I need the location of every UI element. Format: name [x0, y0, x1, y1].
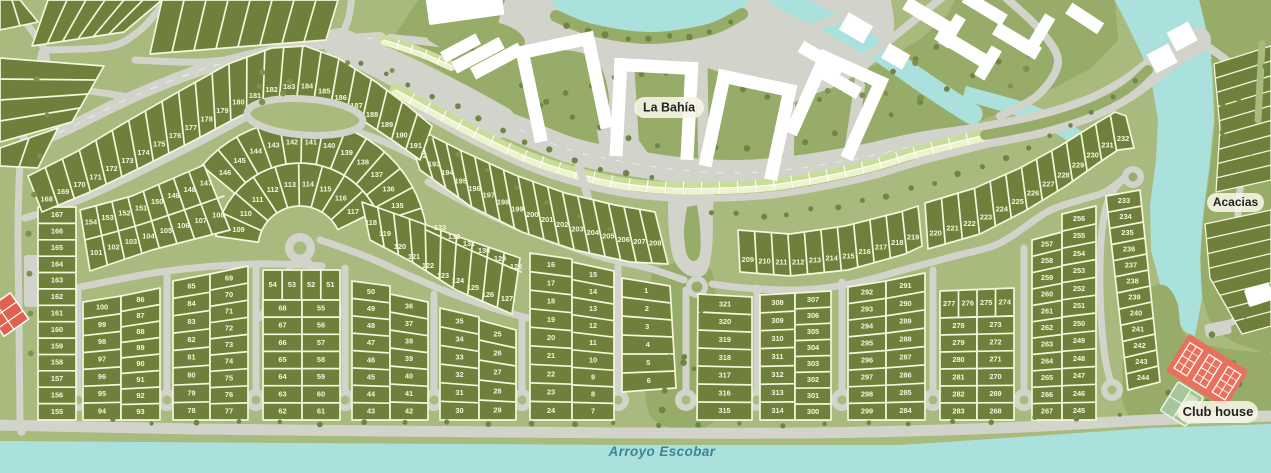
svg-text:149: 149	[167, 191, 179, 200]
svg-text:226: 226	[1027, 188, 1039, 197]
svg-text:275: 275	[980, 298, 992, 307]
svg-text:235: 235	[1121, 228, 1133, 237]
svg-text:237: 237	[1125, 260, 1137, 269]
svg-text:201: 201	[541, 215, 553, 224]
svg-text:74: 74	[225, 357, 234, 366]
svg-text:271: 271	[989, 355, 1001, 364]
svg-text:308: 308	[771, 298, 783, 307]
svg-text:133: 133	[434, 223, 446, 232]
svg-text:295: 295	[861, 338, 873, 347]
svg-text:33: 33	[455, 352, 463, 361]
svg-text:272: 272	[989, 337, 1001, 346]
svg-text:255: 255	[1073, 231, 1085, 240]
svg-text:320: 320	[719, 317, 731, 326]
svg-text:182: 182	[266, 85, 278, 94]
svg-text:176: 176	[169, 131, 181, 140]
svg-text:273: 273	[989, 320, 1001, 329]
svg-text:215: 215	[842, 251, 854, 260]
svg-text:194: 194	[441, 168, 454, 177]
svg-text:261: 261	[1041, 306, 1053, 315]
svg-text:114: 114	[302, 179, 315, 188]
svg-text:168: 168	[41, 194, 53, 203]
svg-text:279: 279	[952, 338, 964, 347]
svg-text:317: 317	[719, 370, 731, 379]
svg-text:112: 112	[267, 185, 279, 194]
svg-text:172: 172	[105, 164, 117, 173]
svg-text:150: 150	[151, 197, 163, 206]
svg-text:219: 219	[907, 232, 919, 241]
svg-text:188: 188	[366, 110, 378, 119]
svg-text:154: 154	[85, 218, 98, 227]
svg-text:34: 34	[455, 334, 464, 343]
svg-text:85: 85	[187, 281, 195, 290]
svg-text:249: 249	[1073, 336, 1085, 345]
svg-text:250: 250	[1073, 319, 1085, 328]
svg-text:305: 305	[807, 327, 819, 336]
svg-text:24: 24	[547, 406, 556, 415]
svg-text:252: 252	[1073, 284, 1085, 293]
svg-text:178: 178	[201, 114, 213, 123]
svg-text:69: 69	[225, 273, 233, 282]
svg-text:287: 287	[899, 352, 911, 361]
svg-text:214: 214	[826, 254, 839, 263]
svg-text:318: 318	[719, 353, 731, 362]
svg-text:83: 83	[187, 317, 195, 326]
svg-text:304: 304	[807, 343, 820, 352]
svg-text:139: 139	[341, 148, 353, 157]
svg-text:247: 247	[1073, 371, 1085, 380]
svg-text:297: 297	[861, 372, 873, 381]
svg-text:57: 57	[317, 338, 325, 347]
svg-text:224: 224	[996, 205, 1009, 214]
svg-text:169: 169	[57, 187, 69, 196]
svg-text:127: 127	[501, 294, 513, 303]
svg-text:197: 197	[483, 191, 495, 200]
svg-text:196: 196	[468, 184, 480, 193]
svg-text:61: 61	[317, 406, 325, 415]
svg-text:257: 257	[1041, 239, 1053, 248]
svg-text:191: 191	[410, 141, 422, 150]
svg-text:195: 195	[455, 176, 467, 185]
svg-text:124: 124	[452, 276, 465, 285]
svg-text:193: 193	[428, 159, 440, 168]
svg-text:213: 213	[809, 255, 821, 264]
svg-text:107: 107	[195, 216, 207, 225]
svg-text:Club house: Club house	[1183, 404, 1254, 419]
svg-text:298: 298	[861, 389, 873, 398]
svg-text:315: 315	[718, 406, 730, 415]
svg-text:28: 28	[493, 386, 501, 395]
svg-text:40: 40	[405, 371, 413, 380]
svg-text:258: 258	[1041, 256, 1053, 265]
svg-text:270: 270	[989, 372, 1001, 381]
svg-text:198: 198	[497, 197, 509, 206]
svg-text:314: 314	[771, 406, 784, 415]
svg-text:135: 135	[391, 201, 403, 210]
svg-text:26: 26	[493, 348, 501, 357]
svg-text:202: 202	[556, 220, 568, 229]
svg-text:129: 129	[494, 254, 506, 263]
svg-text:256: 256	[1073, 214, 1085, 223]
svg-text:302: 302	[807, 375, 819, 384]
svg-text:248: 248	[1073, 354, 1085, 363]
svg-text:243: 243	[1135, 357, 1147, 366]
svg-text:312: 312	[771, 370, 783, 379]
svg-text:283: 283	[952, 406, 964, 415]
svg-text:100: 100	[96, 303, 108, 312]
svg-text:208: 208	[649, 238, 661, 247]
svg-text:La Bahía: La Bahía	[643, 100, 696, 114]
svg-text:190: 190	[395, 130, 407, 139]
svg-text:244: 244	[1137, 373, 1150, 382]
svg-text:99: 99	[98, 320, 106, 329]
svg-text:174: 174	[137, 148, 150, 157]
svg-text:102: 102	[107, 242, 119, 251]
svg-text:161: 161	[51, 308, 63, 317]
svg-text:103: 103	[125, 237, 137, 246]
svg-text:119: 119	[379, 229, 391, 238]
svg-text:46: 46	[367, 355, 375, 364]
svg-text:265: 265	[1041, 373, 1053, 382]
svg-text:200: 200	[526, 210, 538, 219]
svg-text:138: 138	[357, 158, 369, 167]
svg-text:70: 70	[225, 290, 233, 299]
svg-text:290: 290	[899, 299, 911, 308]
svg-text:91: 91	[136, 375, 144, 384]
svg-text:9: 9	[591, 372, 595, 381]
svg-text:167: 167	[51, 210, 63, 219]
svg-text:184: 184	[301, 81, 314, 90]
svg-text:21: 21	[547, 351, 555, 360]
svg-text:299: 299	[861, 406, 873, 415]
svg-text:78: 78	[187, 406, 195, 415]
svg-text:236: 236	[1123, 244, 1135, 253]
svg-text:53: 53	[288, 280, 296, 289]
svg-text:173: 173	[121, 156, 133, 165]
svg-text:316: 316	[718, 388, 730, 397]
svg-text:240: 240	[1130, 309, 1142, 318]
svg-text:86: 86	[136, 295, 144, 304]
svg-text:181: 181	[249, 91, 261, 100]
svg-text:32: 32	[455, 370, 463, 379]
svg-text:123: 123	[437, 271, 449, 280]
svg-text:72: 72	[225, 323, 233, 332]
svg-text:241: 241	[1132, 325, 1144, 334]
svg-text:63: 63	[278, 389, 286, 398]
svg-text:29: 29	[493, 405, 501, 414]
svg-text:288: 288	[899, 335, 911, 344]
svg-text:84: 84	[187, 299, 196, 308]
svg-text:232: 232	[1117, 134, 1129, 143]
svg-text:19: 19	[547, 315, 555, 324]
svg-text:148: 148	[184, 185, 196, 194]
svg-text:54: 54	[268, 280, 277, 289]
svg-text:30: 30	[455, 406, 463, 415]
svg-text:65: 65	[278, 355, 286, 364]
svg-text:90: 90	[136, 359, 144, 368]
svg-text:71: 71	[225, 307, 233, 316]
svg-text:155: 155	[51, 407, 63, 416]
svg-text:259: 259	[1041, 273, 1053, 282]
svg-text:68: 68	[278, 304, 286, 313]
svg-text:158: 158	[51, 358, 63, 367]
svg-text:101: 101	[90, 248, 102, 257]
svg-text:7: 7	[591, 406, 595, 415]
svg-text:115: 115	[320, 184, 332, 193]
svg-text:22: 22	[547, 369, 555, 378]
svg-text:294: 294	[861, 321, 874, 330]
svg-text:153: 153	[101, 213, 113, 222]
svg-text:140: 140	[323, 141, 335, 150]
svg-text:60: 60	[317, 389, 325, 398]
svg-text:37: 37	[405, 319, 413, 328]
svg-text:211: 211	[775, 258, 787, 267]
svg-text:77: 77	[225, 407, 233, 416]
svg-text:321: 321	[719, 299, 731, 308]
svg-text:220: 220	[929, 229, 941, 238]
svg-text:76: 76	[225, 390, 233, 399]
svg-text:156: 156	[51, 390, 63, 399]
svg-text:48: 48	[367, 321, 375, 330]
svg-text:98: 98	[98, 337, 106, 346]
svg-text:296: 296	[861, 355, 873, 364]
svg-text:210: 210	[758, 256, 770, 265]
svg-text:207: 207	[633, 237, 645, 246]
svg-text:14: 14	[589, 287, 598, 296]
svg-text:126: 126	[482, 290, 494, 299]
svg-text:260: 260	[1041, 289, 1053, 298]
svg-text:16: 16	[547, 260, 555, 269]
svg-text:110: 110	[240, 209, 252, 218]
svg-text:162: 162	[51, 292, 63, 301]
svg-text:313: 313	[771, 388, 783, 397]
svg-text:254: 254	[1073, 249, 1086, 258]
svg-text:145: 145	[233, 156, 245, 165]
svg-text:17: 17	[547, 278, 555, 287]
svg-text:227: 227	[1042, 179, 1054, 188]
svg-text:106: 106	[177, 221, 189, 230]
svg-text:122: 122	[422, 261, 434, 270]
svg-text:307: 307	[807, 295, 819, 304]
svg-text:203: 203	[571, 225, 583, 234]
svg-text:64: 64	[278, 372, 287, 381]
svg-text:253: 253	[1073, 266, 1085, 275]
svg-text:96: 96	[98, 372, 106, 381]
svg-text:56: 56	[317, 321, 325, 330]
svg-text:229: 229	[1072, 160, 1084, 169]
svg-text:228: 228	[1057, 170, 1069, 179]
svg-text:58: 58	[317, 355, 325, 364]
svg-text:218: 218	[891, 238, 903, 247]
svg-text:51: 51	[326, 280, 334, 289]
svg-text:280: 280	[952, 355, 964, 364]
svg-text:245: 245	[1073, 406, 1085, 415]
svg-text:104: 104	[142, 231, 155, 240]
svg-text:12: 12	[589, 321, 597, 330]
svg-text:216: 216	[859, 247, 871, 256]
svg-text:75: 75	[225, 373, 233, 382]
svg-text:121: 121	[408, 252, 420, 261]
svg-text:225: 225	[1012, 197, 1024, 206]
svg-text:151: 151	[135, 203, 147, 212]
svg-text:143: 143	[267, 140, 279, 149]
svg-text:217: 217	[875, 242, 887, 251]
svg-text:95: 95	[98, 389, 106, 398]
svg-text:281: 281	[952, 372, 964, 381]
svg-text:97: 97	[98, 354, 106, 363]
svg-text:268: 268	[989, 406, 1001, 415]
svg-text:291: 291	[899, 281, 911, 290]
svg-text:206: 206	[618, 235, 630, 244]
svg-text:79: 79	[187, 388, 195, 397]
svg-text:263: 263	[1041, 340, 1053, 349]
svg-text:146: 146	[219, 168, 231, 177]
svg-text:15: 15	[589, 270, 597, 279]
svg-text:52: 52	[307, 280, 315, 289]
svg-text:269: 269	[989, 389, 1001, 398]
svg-text:199: 199	[511, 204, 523, 213]
svg-text:175: 175	[153, 139, 165, 148]
svg-text:3: 3	[645, 322, 649, 331]
svg-text:179: 179	[216, 106, 228, 115]
svg-text:157: 157	[51, 374, 63, 383]
svg-text:128: 128	[510, 262, 522, 271]
svg-text:251: 251	[1073, 301, 1085, 310]
svg-text:87: 87	[136, 311, 144, 320]
svg-text:23: 23	[547, 388, 555, 397]
svg-text:189: 189	[381, 120, 393, 129]
svg-text:234: 234	[1119, 212, 1132, 221]
svg-text:277: 277	[943, 299, 955, 308]
svg-text:230: 230	[1087, 150, 1099, 159]
svg-text:267: 267	[1041, 407, 1053, 416]
svg-text:131: 131	[463, 239, 475, 248]
svg-text:310: 310	[771, 334, 783, 343]
svg-text:109: 109	[232, 225, 244, 234]
svg-text:5: 5	[646, 358, 650, 367]
svg-text:212: 212	[792, 257, 804, 266]
svg-text:11: 11	[589, 338, 597, 347]
svg-text:116: 116	[335, 194, 347, 203]
svg-text:276: 276	[962, 299, 974, 308]
svg-text:67: 67	[278, 321, 286, 330]
svg-text:88: 88	[136, 327, 144, 336]
svg-text:293: 293	[861, 304, 873, 313]
svg-text:59: 59	[317, 372, 325, 381]
svg-text:2: 2	[645, 304, 649, 313]
svg-text:117: 117	[347, 207, 359, 216]
svg-text:50: 50	[367, 287, 375, 296]
svg-text:264: 264	[1041, 356, 1054, 365]
svg-text:233: 233	[1118, 196, 1130, 205]
svg-text:319: 319	[719, 335, 731, 344]
svg-text:49: 49	[367, 304, 375, 313]
svg-text:66: 66	[278, 338, 286, 347]
svg-text:111: 111	[252, 195, 264, 204]
svg-text:93: 93	[136, 407, 144, 416]
svg-text:242: 242	[1133, 341, 1145, 350]
svg-text:27: 27	[493, 367, 501, 376]
svg-text:311: 311	[772, 352, 784, 361]
svg-text:309: 309	[771, 316, 783, 325]
svg-text:165: 165	[51, 243, 63, 252]
svg-text:137: 137	[371, 170, 383, 179]
svg-text:147: 147	[200, 179, 212, 188]
svg-text:45: 45	[367, 372, 375, 381]
svg-text:38: 38	[405, 337, 413, 346]
svg-text:163: 163	[51, 276, 63, 285]
svg-text:43: 43	[367, 406, 375, 415]
svg-text:31: 31	[455, 388, 463, 397]
svg-text:301: 301	[807, 391, 819, 400]
svg-text:80: 80	[187, 370, 195, 379]
svg-text:209: 209	[742, 255, 754, 264]
svg-text:105: 105	[160, 226, 172, 235]
svg-text:185: 185	[318, 86, 330, 95]
svg-text:159: 159	[51, 341, 63, 350]
svg-text:44: 44	[367, 389, 376, 398]
svg-text:42: 42	[405, 406, 413, 415]
svg-text:20: 20	[547, 333, 555, 342]
svg-text:13: 13	[589, 304, 597, 313]
svg-text:18: 18	[547, 297, 555, 306]
svg-text:282: 282	[952, 389, 964, 398]
svg-text:35: 35	[455, 316, 463, 325]
svg-text:89: 89	[136, 343, 144, 352]
svg-text:125: 125	[467, 283, 479, 292]
svg-text:231: 231	[1101, 141, 1113, 150]
svg-text:92: 92	[136, 391, 144, 400]
svg-text:25: 25	[493, 329, 501, 338]
svg-text:152: 152	[118, 208, 130, 217]
svg-text:239: 239	[1128, 292, 1140, 301]
svg-text:81: 81	[187, 353, 195, 362]
svg-text:113: 113	[284, 180, 296, 189]
svg-text:262: 262	[1041, 323, 1053, 332]
svg-text:285: 285	[899, 388, 911, 397]
svg-text:144: 144	[250, 147, 263, 156]
svg-text:94: 94	[98, 406, 107, 415]
svg-text:289: 289	[899, 317, 911, 326]
svg-text:39: 39	[405, 354, 413, 363]
svg-text:1: 1	[644, 286, 648, 295]
svg-text:6: 6	[647, 376, 651, 385]
svg-text:170: 170	[73, 180, 85, 189]
svg-text:41: 41	[405, 389, 413, 398]
svg-text:221: 221	[946, 224, 958, 233]
svg-text:82: 82	[187, 335, 195, 344]
svg-text:164: 164	[51, 259, 64, 268]
svg-text:222: 222	[963, 219, 975, 228]
svg-text:166: 166	[51, 227, 63, 236]
svg-text:10: 10	[589, 355, 597, 364]
svg-text:171: 171	[89, 172, 101, 181]
svg-text:108: 108	[212, 211, 224, 220]
svg-text:177: 177	[185, 123, 197, 132]
svg-text:73: 73	[225, 340, 233, 349]
svg-text:47: 47	[367, 338, 375, 347]
svg-text:120: 120	[394, 242, 406, 251]
svg-text:274: 274	[999, 297, 1012, 306]
svg-text:55: 55	[317, 304, 325, 313]
svg-text:205: 205	[602, 232, 614, 241]
svg-text:246: 246	[1073, 389, 1085, 398]
svg-text:8: 8	[591, 389, 595, 398]
svg-text:160: 160	[51, 325, 63, 334]
svg-text:303: 303	[807, 359, 819, 368]
svg-text:118: 118	[365, 218, 377, 227]
svg-text:300: 300	[807, 407, 819, 416]
